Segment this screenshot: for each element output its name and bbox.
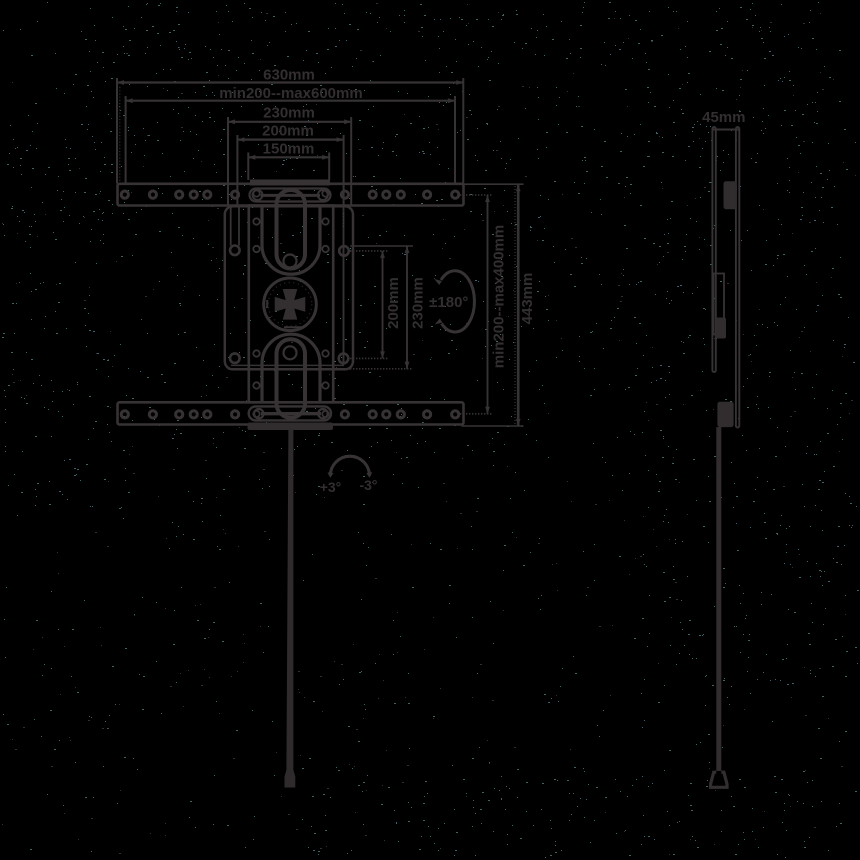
svg-text:min200--max400mm: min200--max400mm [491, 225, 508, 368]
svg-text:+3°: +3° [320, 479, 342, 495]
svg-text:-3°: -3° [359, 477, 377, 493]
svg-text:45mm: 45mm [702, 109, 745, 126]
svg-text:630mm: 630mm [263, 67, 315, 84]
svg-text:443mm: 443mm [519, 273, 536, 325]
svg-text:min200--max600mm: min200--max600mm [219, 85, 362, 102]
svg-text:200mm: 200mm [385, 277, 402, 329]
svg-text:200mm: 200mm [262, 123, 314, 140]
svg-text:150mm: 150mm [263, 141, 315, 158]
svg-text:±180°: ±180° [429, 294, 468, 311]
svg-text:230mm: 230mm [410, 277, 427, 329]
svg-text:230mm: 230mm [263, 105, 315, 122]
